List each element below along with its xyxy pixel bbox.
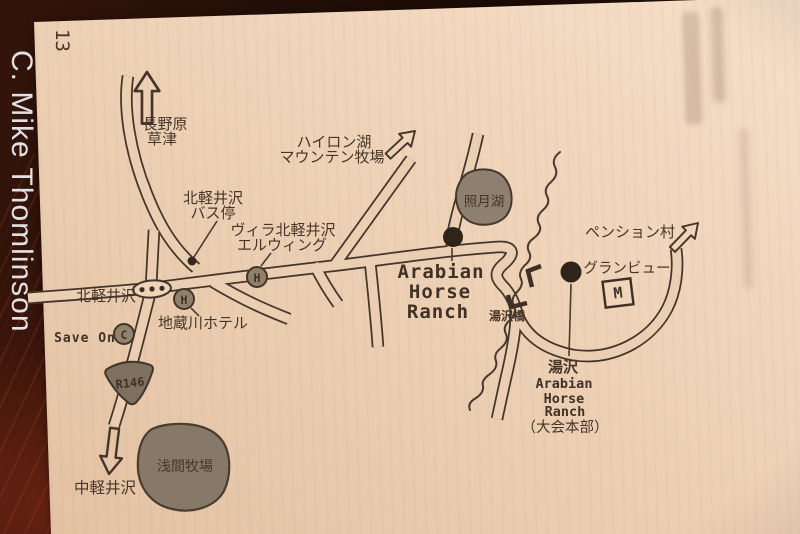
- photo-of-map: H H C R146 M 長野原 草津 ハイロン湖 マウンテン: [0, 0, 800, 534]
- label-hq-4: Ranch: [545, 404, 586, 420]
- label-ranch-2: Horse: [409, 281, 471, 303]
- photographer-watermark: C. Mike Thomlinson: [4, 50, 38, 333]
- busstop-dot: [188, 257, 197, 266]
- label-ranch-1: Arabian: [397, 261, 484, 283]
- grandview-dot: [561, 262, 582, 283]
- route-146-shield: R146: [104, 359, 156, 406]
- convenience-letter: C: [121, 328, 128, 342]
- hotel-letter: H: [181, 293, 188, 307]
- bridge-mark-upper: [528, 266, 541, 287]
- road-core: [334, 159, 411, 266]
- label-hq-5: （大会本部）: [522, 419, 609, 436]
- label-save-on: Save On: [54, 331, 116, 346]
- leader-busstop: [194, 221, 217, 257]
- label-hq-2: Arabian: [536, 376, 593, 392]
- label-nakakaruizawa: 中軽井沢: [74, 479, 137, 497]
- arrow-to-hairon-lake: [382, 125, 421, 163]
- label-pension-village: ペンション村: [585, 224, 675, 241]
- ranch-dot: [443, 227, 463, 247]
- label-ranch-3: Ranch: [407, 301, 469, 323]
- leader-grandview: [569, 284, 571, 356]
- label-busstop-2: バス停: [190, 205, 235, 222]
- label-kusatsu: 草津: [147, 131, 177, 148]
- road-core: [114, 290, 151, 426]
- road-core: [213, 282, 289, 319]
- label-kitakaruizawa: 北軽井沢: [76, 288, 136, 305]
- label-yuzawa-bridge: 湯沢橋: [489, 308, 526, 323]
- arrow-to-nakakaruizawa: [98, 427, 125, 475]
- label-hq-1: 湯沢: [548, 358, 579, 376]
- leader-villa: [261, 253, 271, 266]
- label-grand-view: グランビュー: [584, 260, 671, 277]
- label-villa-2: エルウィング: [237, 237, 327, 254]
- label-shogetsu-lake: 照月湖: [464, 194, 505, 209]
- m-marker-box: M: [603, 278, 634, 307]
- label-asama-ranch: 浅間牧場: [157, 458, 213, 474]
- road-core: [151, 230, 154, 287]
- page-number: 13: [51, 29, 73, 52]
- label-mountain-ranch: マウンテン牧場: [279, 149, 384, 166]
- road-core: [126, 76, 196, 268]
- hotel-letter: H: [254, 271, 261, 285]
- label-jizogawa-hotel: 地蔵川ホテル: [158, 315, 248, 332]
- hand-drawn-map: H H C R146 M 長野原 草津 ハイロン湖 マウンテン: [0, 0, 800, 534]
- bus-terminal-symbol: [132, 279, 171, 299]
